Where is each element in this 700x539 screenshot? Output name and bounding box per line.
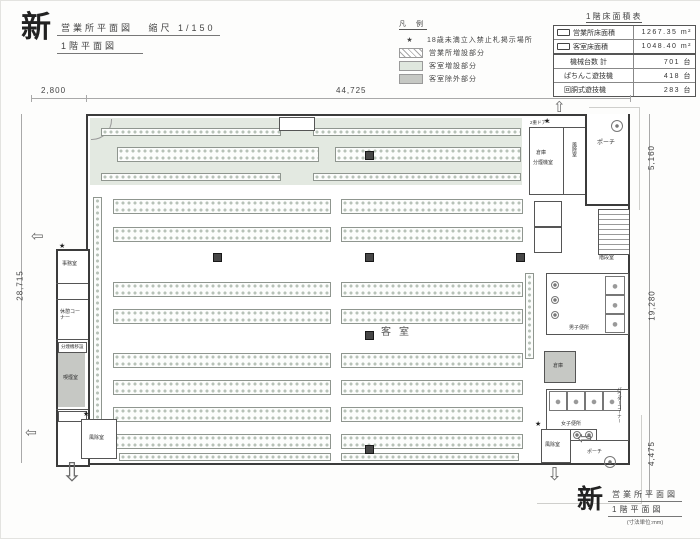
room-label-windbreak: 風除室: [89, 435, 104, 441]
entrance-arrow-down-icon: ⇩: [61, 459, 83, 485]
sheet-title-text: 営業所平面図: [61, 23, 133, 33]
machine-counter-row: [101, 128, 281, 136]
pillar: [365, 445, 374, 454]
dim-top-left: 2,800: [41, 86, 66, 95]
machine-island: [341, 227, 523, 242]
urinal-icon: [551, 281, 559, 289]
entrance-arrow-left-icon: ⇦: [25, 425, 37, 439]
area-table: 営業所床面積 1267.35 m² 客室床面積 1048.40 m² 機械台数 …: [553, 25, 696, 97]
entrance-arrow-left-icon: ⇦: [577, 429, 592, 447]
machine-island: [335, 147, 521, 162]
table-row: 客室床面積 1048.40 m²: [554, 40, 695, 55]
row-label: 客室床面積: [573, 42, 608, 52]
row-value: 283: [664, 87, 680, 94]
row-unit: 台: [684, 87, 693, 94]
room-label-porch: ポーチ: [597, 140, 615, 147]
machine-island: [341, 407, 523, 422]
machine-island: [341, 353, 523, 368]
legend-item-label: 客室除外部分: [429, 74, 477, 84]
urinal-icon: [551, 311, 559, 319]
wall-recess: [279, 117, 315, 131]
tick: [630, 95, 631, 102]
sheet-subtitle: 1階平面図: [608, 504, 682, 517]
machine-island: [113, 309, 331, 324]
partition: [56, 299, 88, 300]
legend-item-label: 18歳未満立入禁止札掲示場所: [427, 35, 533, 45]
legend-item-star: ★ 18歳未満立入禁止札掲示場所: [399, 33, 533, 46]
machine-island: [117, 147, 319, 162]
row-unit: 台: [684, 73, 693, 80]
room-storage-smoke: 倉庫 分煙機室: [529, 127, 565, 195]
dim-left: 28,715: [16, 270, 25, 300]
machine-island: [113, 227, 331, 242]
machine-island: [113, 282, 331, 297]
sheet-title: 営業所平面図 縮尺 1/150: [57, 21, 220, 36]
toilet-stall: [605, 314, 625, 333]
legend: 凡 例 ★ 18歳未満立入禁止札掲示場所 営業所増設部分 客室増設部分 客室除外…: [399, 13, 533, 85]
toilet-stall: [549, 391, 567, 411]
age-restriction-star-icon: ★: [535, 421, 541, 428]
dim-top: 44,725: [336, 86, 366, 95]
row-label: 営業所床面積: [573, 28, 615, 38]
machine-counter-row: [313, 173, 521, 181]
room-label-mens-toilet: 男子便所: [569, 325, 589, 331]
table-row: 回胴式遊技機 283 台: [554, 83, 695, 96]
machine-island: [341, 380, 523, 395]
table-row: 機械台数 計 701 台: [554, 55, 695, 69]
row-label: 回胴式遊技機: [564, 85, 606, 95]
toilet-stall: [585, 391, 603, 411]
service-room: [534, 227, 562, 253]
machine-island: [113, 407, 331, 422]
toilet-stall: [605, 295, 625, 314]
room-label-porch: ポーチ: [587, 449, 602, 455]
machine-island: [113, 380, 331, 395]
rect-symbol-icon: [557, 29, 570, 36]
room-label-storage: 倉庫: [536, 150, 546, 156]
machine-island: [341, 282, 523, 297]
pillar: [213, 253, 222, 262]
room-storage-gray: 倉庫: [544, 351, 576, 383]
units-note: (寸法単位:mm): [608, 518, 682, 526]
row-label: 機械台数 計: [570, 57, 607, 67]
machine-counter-row: [119, 453, 331, 461]
entrance-arrow-down-icon: ⇩: [547, 465, 562, 483]
room-windbreak-bottom-left: 風除室: [81, 419, 117, 459]
pillar: [365, 253, 374, 262]
planter-icon: [611, 120, 623, 132]
machine-counter-row: [341, 453, 519, 461]
room-label-womens-toilet: 女子便所: [561, 421, 581, 427]
room-label-windbreak: 風除室: [545, 442, 560, 448]
machine-island: [113, 353, 331, 368]
service-room: [534, 201, 562, 227]
note-box: 分煙機移設: [58, 342, 87, 353]
age-restriction-star-icon: ★: [83, 411, 89, 418]
age-restriction-star-icon: ★: [59, 243, 65, 250]
pillar: [365, 151, 374, 160]
title-block-top: 新 営業所平面図 縮尺 1/150 1階平面図: [21, 13, 220, 54]
room-label-rest-corner: 休憩コーナー: [60, 309, 84, 321]
row-unit: m²: [681, 29, 692, 36]
legend-item-label: 客室増設部分: [429, 61, 477, 71]
tick: [86, 95, 87, 102]
machine-island: [341, 309, 523, 324]
legend-item-green: 客室増設部分: [399, 59, 533, 72]
revision-stamp: 新: [577, 487, 603, 526]
legend-item-gray: 客室除外部分: [399, 72, 533, 85]
legend-item-label: 営業所増設部分: [429, 48, 485, 58]
partition: [56, 409, 88, 410]
table-row: 営業所床面積 1267.35 m²: [554, 26, 695, 40]
row-value: 1048.40: [642, 43, 678, 50]
entrance-arrow-left-icon: ⇦: [31, 229, 44, 244]
room-label-hall: 客室: [381, 327, 417, 339]
machine-counter-row: [313, 128, 521, 136]
machine-island: [113, 434, 331, 449]
planter-icon: [604, 456, 616, 468]
legend-title: 凡 例: [399, 19, 427, 30]
tick: [31, 95, 32, 102]
entrance-arrow-up-icon: ⇧: [553, 100, 566, 115]
machine-island: [113, 199, 331, 214]
partition: [56, 339, 88, 340]
room-label-smoke-machine-room: 分煙機室: [533, 160, 553, 166]
machine-island: [341, 199, 523, 214]
note-smoke-machine: 分煙機移設: [61, 344, 84, 349]
dim-right-mid: 19,280: [648, 290, 657, 320]
revision-stamp: 新: [21, 13, 51, 54]
partition: [56, 283, 88, 284]
sheet-scale: 縮尺 1/150: [149, 23, 216, 33]
dimension-line-top: [31, 98, 631, 99]
row-value: 418: [664, 73, 680, 80]
row-unit: 台: [684, 59, 693, 66]
pillar: [516, 253, 525, 262]
room-label-powder-corner: パウダーコーナー: [617, 387, 622, 437]
pillar: [365, 331, 374, 340]
room-label-smoking: 喫煙室: [63, 375, 78, 381]
room-label-stair: 階段室: [599, 255, 614, 261]
star-icon: ★: [399, 36, 421, 44]
hatch-swatch-icon: [399, 48, 423, 58]
row-unit: m²: [681, 43, 692, 50]
room-windbreak-bottom-right: 風除室: [541, 429, 571, 463]
green-swatch-icon: [399, 61, 423, 71]
age-restriction-star-icon: ★: [544, 118, 550, 125]
room-smoking: 喫煙室: [58, 353, 85, 407]
toilet-stall: [605, 276, 625, 295]
urinal-icon: [551, 296, 559, 304]
floor-plan-sheet: 新 営業所平面図 縮尺 1/150 1階平面図 凡 例 ★ 18歳未満立入禁止札…: [0, 0, 700, 539]
area-table-title: 1階床面積表: [586, 11, 642, 23]
legend-item-hatch: 営業所増設部分: [399, 46, 533, 59]
dim-right-upper: 5,160: [647, 145, 656, 170]
row-label: ぱちんこ遊技機: [564, 71, 613, 81]
staircase: [598, 209, 630, 255]
toilet-stall: [567, 391, 585, 411]
sheet-subtitle: 1階平面図: [57, 39, 143, 54]
title-block-bottom: 新 営業所平面図 1階平面図 (寸法単位:mm): [577, 487, 682, 526]
machine-side-strip: [93, 197, 102, 425]
room-label-windbreak: 風除室: [571, 142, 577, 157]
table-row: ぱちんこ遊技機 418 台: [554, 69, 695, 83]
machine-counter-row: [101, 173, 281, 181]
room-label-storage: 倉庫: [553, 363, 563, 369]
row-value: 1267.35: [642, 29, 678, 36]
gray-swatch-icon: [399, 74, 423, 84]
room-windbreak-top-right: 風除室: [563, 127, 587, 195]
dim-right-lower: 4,475: [647, 441, 656, 466]
service-counter: [525, 273, 534, 359]
room-label-office: 事務室: [62, 261, 77, 267]
sheet-title: 営業所平面図: [608, 489, 682, 502]
row-value: 701: [664, 59, 680, 66]
rect-symbol-icon: [557, 43, 570, 50]
